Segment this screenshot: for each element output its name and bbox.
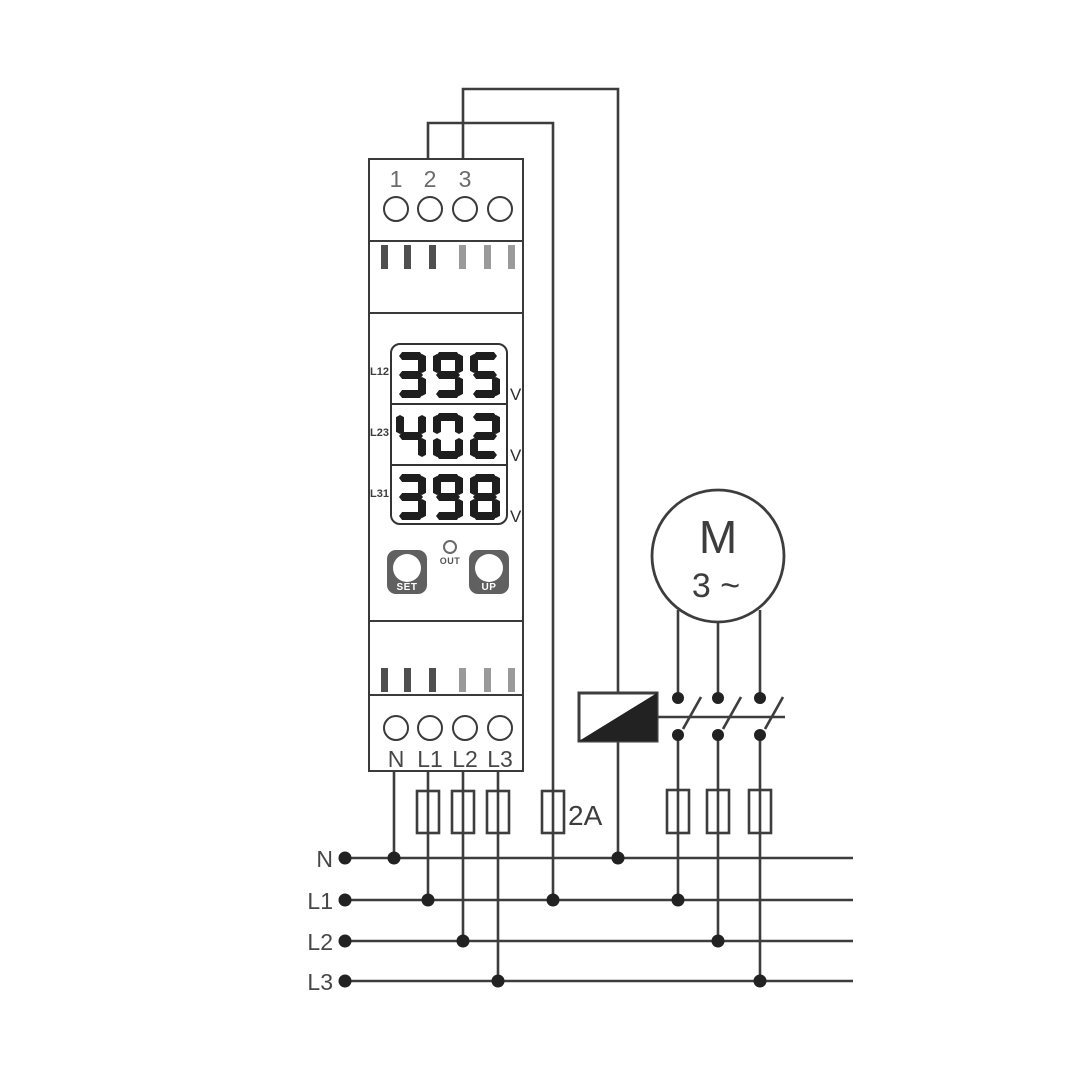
phase-pair-label-l12: L12 — [370, 366, 389, 378]
terminal-screw — [417, 196, 443, 222]
lcd-row-l31 — [392, 467, 506, 525]
phase-pair-label-l31: L31 — [370, 488, 389, 500]
motor-phase-label: 3 ~ — [692, 567, 740, 605]
bus-label-l3: L3 — [307, 969, 333, 995]
section-divider — [370, 620, 522, 622]
seven-segment-digit — [396, 413, 426, 459]
vent-slot — [404, 245, 411, 269]
vent-slot — [429, 668, 436, 692]
seven-segment-digit — [470, 474, 500, 520]
terminal-screw — [383, 715, 409, 741]
lcd-display — [390, 343, 508, 525]
vent-slot — [429, 245, 436, 269]
voltage-monitor-device: 1 2 3 L12 L23 — [368, 158, 524, 772]
volt-unit-label: V — [510, 446, 526, 466]
contact-dot — [712, 729, 724, 741]
section-divider — [370, 312, 522, 314]
terminal-screw — [487, 196, 513, 222]
bus-label-l2: L2 — [307, 929, 333, 955]
bottom-terminal-label-n: N — [378, 746, 414, 773]
out-led — [443, 540, 457, 554]
contact-dot — [754, 692, 766, 704]
voltage-reading-l31 — [396, 474, 500, 520]
terminal-screw — [383, 196, 409, 222]
lcd-row-divider — [392, 403, 506, 405]
vent-slot — [459, 668, 466, 692]
bottom-terminal-label-l1: L1 — [412, 746, 448, 773]
up-button-cap — [475, 554, 503, 582]
phase-pair-label-l23: L23 — [370, 427, 389, 439]
set-button-label: SET — [387, 582, 427, 593]
seven-segment-digit — [433, 413, 463, 459]
top-terminal-label-3: 3 — [455, 166, 475, 193]
vent-slot — [484, 668, 491, 692]
junction-dot — [339, 935, 352, 948]
junction-dot — [457, 935, 470, 948]
switch-blade-1 — [683, 697, 701, 729]
lcd-row-divider — [392, 464, 506, 466]
voltage-reading-l23 — [396, 413, 500, 459]
junction-dot — [612, 852, 625, 865]
terminal-screw — [452, 196, 478, 222]
terminal-screw — [452, 715, 478, 741]
lcd-row-l12 — [392, 345, 506, 403]
junction-dot — [422, 894, 435, 907]
section-divider — [370, 240, 522, 242]
junction-dot — [339, 852, 352, 865]
vent-slot — [404, 668, 411, 692]
seven-segment-digit — [433, 474, 463, 520]
bus-label-l1: L1 — [307, 888, 333, 914]
up-button: UP — [469, 550, 509, 594]
set-button: SET — [387, 550, 427, 594]
junction-dot — [712, 935, 725, 948]
junction-dot — [339, 975, 352, 988]
out-led-label: OUT — [434, 556, 466, 566]
bottom-terminal-label-l3: L3 — [482, 746, 518, 773]
switch-blade-2 — [723, 697, 741, 729]
wiring-diagram: 2A M 3 ~ N L1 L2 L3 — [0, 0, 1080, 1080]
junction-dot — [754, 975, 767, 988]
voltage-reading-l12 — [396, 352, 500, 398]
bottom-terminal-label-l2: L2 — [447, 746, 483, 773]
junction-dot — [339, 894, 352, 907]
seven-segment-digit — [396, 352, 426, 398]
terminal-screw — [487, 715, 513, 741]
vent-slot — [484, 245, 491, 269]
junction-dot — [547, 894, 560, 907]
bus-label-n: N — [316, 846, 333, 872]
section-divider — [370, 694, 522, 696]
vent-slot — [381, 245, 388, 269]
fuse-rating-label: 2A — [568, 800, 603, 831]
motor-letter: M — [699, 511, 737, 563]
seven-segment-digit — [396, 474, 426, 520]
volt-unit-label: V — [510, 385, 526, 405]
vent-slot — [508, 245, 515, 269]
contact-dot — [754, 729, 766, 741]
junction-dot — [492, 975, 505, 988]
contact-dot — [672, 729, 684, 741]
junction-dot — [672, 894, 685, 907]
set-button-cap — [393, 554, 421, 582]
lcd-row-l23 — [392, 406, 506, 464]
volt-unit-label: V — [510, 507, 526, 527]
contact-dot — [712, 692, 724, 704]
top-terminal-label-2: 2 — [420, 166, 440, 193]
circuit-layer: 2A M 3 ~ N L1 L2 L3 — [0, 0, 1080, 1080]
seven-segment-digit — [470, 352, 500, 398]
up-button-label: UP — [469, 582, 509, 593]
junction-dot — [388, 852, 401, 865]
terminal-screw — [417, 715, 443, 741]
seven-segment-digit — [470, 413, 500, 459]
seven-segment-digit — [433, 352, 463, 398]
contact-dot — [672, 692, 684, 704]
vent-slot — [459, 245, 466, 269]
top-terminal-label-1: 1 — [386, 166, 406, 193]
vent-slot — [381, 668, 388, 692]
switch-blade-3 — [765, 697, 783, 729]
vent-slot — [508, 668, 515, 692]
